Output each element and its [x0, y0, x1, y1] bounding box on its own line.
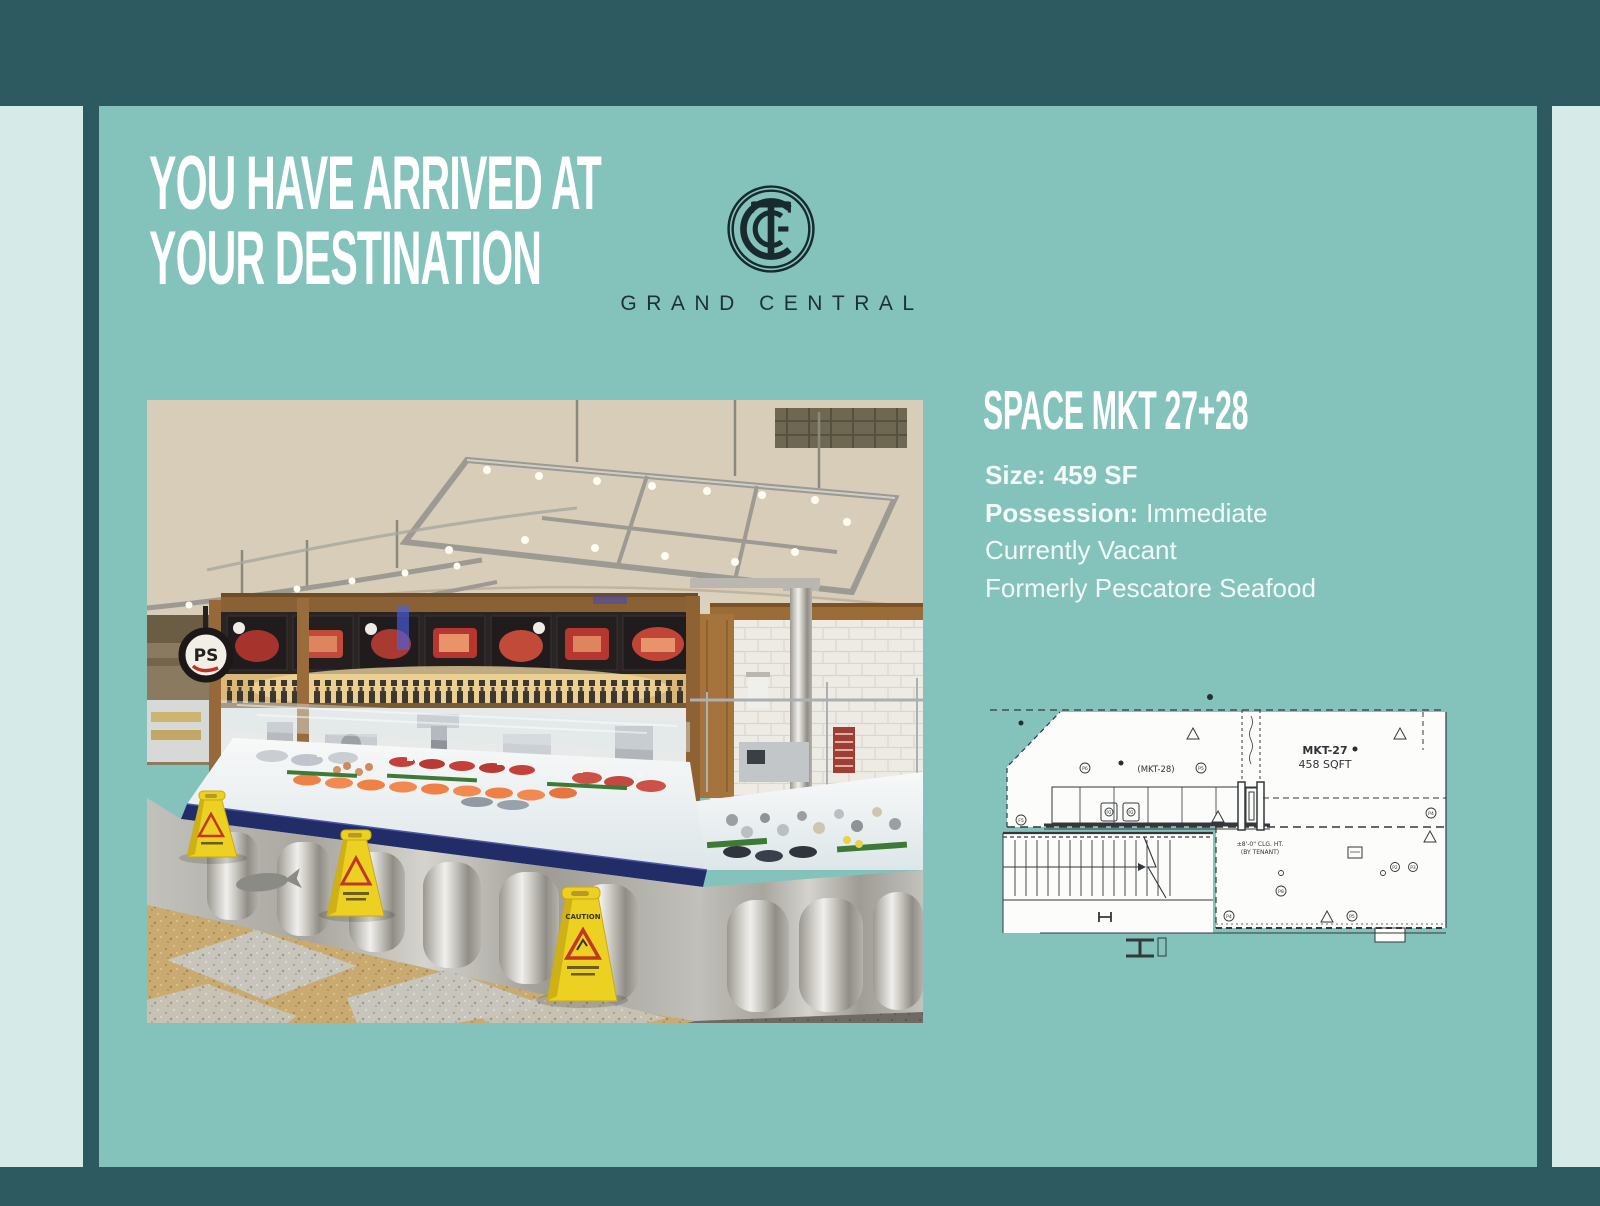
page-title: YOU HAVE ARRIVED AT YOUR DESTINATION — [149, 146, 601, 296]
room-b-area: 458 SQFT — [1299, 758, 1352, 771]
svg-text:P5: P5 — [1198, 766, 1204, 772]
title-line-1: YOU HAVE ARRIVED AT — [149, 146, 601, 221]
svg-text:P4: P4 — [1226, 914, 1232, 920]
space-title: SPACE MKT 27+28 — [983, 383, 1248, 438]
floor-plan: F5 P6 P5 P2 P2 P4 P8 P2 P3 P4 P5 (MKT-28… — [980, 690, 1448, 958]
history-line: Formerly Pescatore Seafood — [985, 570, 1316, 608]
market-photo-illustration: CAUTION PS — [147, 400, 923, 1023]
status-line: Currently Vacant — [985, 532, 1316, 570]
plan-white-areas — [1003, 712, 1446, 942]
ceiling-note-2: (BY TENANT) — [1241, 849, 1279, 856]
svg-text:P4: P4 — [1428, 811, 1434, 817]
size-line: Size:459 SF — [985, 457, 1316, 495]
size-label: Size: — [985, 460, 1046, 490]
price-tag-rack — [833, 727, 855, 773]
listing-details: Size:459 SF Possession:Immediate Current… — [985, 457, 1316, 607]
caution-sign-text: CAUTION — [565, 913, 600, 921]
possession-value: Immediate — [1146, 498, 1267, 528]
gct-monogram-icon — [725, 183, 817, 275]
svg-text:F5: F5 — [1018, 818, 1024, 824]
brand-name: GRAND CENTRAL — [620, 292, 923, 316]
ceiling-note-1: ±8'-0" CLG. HT. — [1237, 841, 1284, 848]
possession-line: Possession:Immediate — [985, 495, 1316, 533]
possession-label: Possession: — [985, 498, 1138, 528]
room-a-label: (MKT-28) — [1137, 765, 1174, 775]
ceiling-vent — [775, 408, 907, 448]
svg-text:P2: P2 — [1128, 810, 1134, 815]
size-value: 459 SF — [1054, 460, 1138, 490]
right-accent-strip — [1552, 106, 1600, 1167]
svg-text:P2: P2 — [1106, 810, 1112, 815]
market-photo: CAUTION PS — [147, 400, 923, 1023]
svg-text:P2: P2 — [1392, 865, 1398, 871]
flyer-page: YOU HAVE ARRIVED AT YOUR DESTINATION GRA… — [0, 0, 1600, 1206]
paper-towel-roll — [746, 672, 770, 708]
svg-text:P3: P3 — [1410, 865, 1416, 871]
svg-text:P5: P5 — [1349, 914, 1355, 920]
ps-sign-letters: PS — [194, 646, 219, 666]
main-panel: YOU HAVE ARRIVED AT YOUR DESTINATION GRA… — [99, 106, 1537, 1167]
left-accent-strip — [0, 106, 83, 1167]
room-b-name: MKT-27 — [1302, 744, 1347, 757]
title-line-2: YOUR DESTINATION — [149, 221, 601, 296]
svg-text:P8: P8 — [1278, 889, 1284, 895]
svg-text:P6: P6 — [1082, 766, 1088, 772]
menu-boards — [227, 616, 693, 670]
